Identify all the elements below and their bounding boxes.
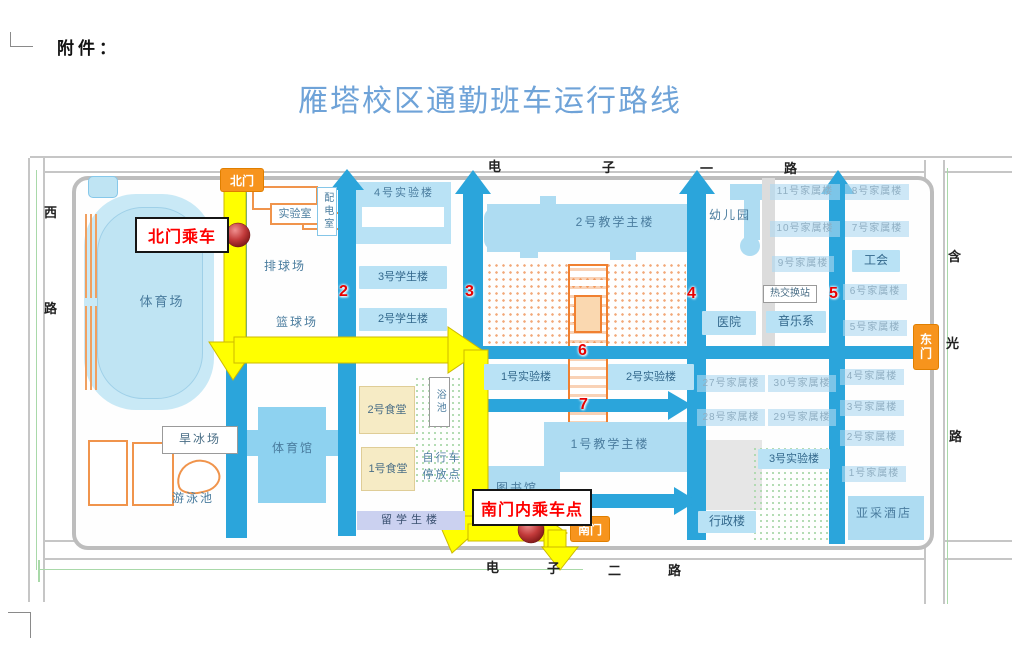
road-name-bottom: 路 bbox=[668, 560, 681, 579]
stadium-stand bbox=[85, 306, 99, 390]
north-gate: 北门 bbox=[221, 169, 263, 191]
map-label: 27号家属楼 bbox=[697, 375, 765, 392]
page-title: 雁塔校区通勤班车运行路线 bbox=[250, 76, 730, 120]
map-label: 浴池 bbox=[429, 377, 450, 427]
route-number-7: 7 bbox=[579, 396, 588, 414]
map-label: 2号食堂 bbox=[359, 386, 415, 434]
road-name-left: 西 bbox=[44, 202, 57, 221]
teach2-building bbox=[484, 208, 512, 250]
map-label: 29号家属楼 bbox=[768, 409, 836, 426]
north-boarding-label: 北门乘车 bbox=[135, 217, 229, 253]
map-label: 2号实验楼 bbox=[608, 364, 694, 390]
green-line bbox=[36, 170, 37, 570]
map-label: 游泳池 bbox=[164, 491, 222, 507]
map-label: 3号家属楼 bbox=[840, 400, 904, 416]
map-label: 9号家属楼 bbox=[772, 256, 834, 272]
map-label: 1号实验楼 bbox=[484, 364, 568, 390]
document-page: 附件： 雁塔校区通勤班车运行路线 电 子 一 路 电 子 二 路 西 路 含 光… bbox=[0, 0, 1017, 669]
map-label: 实验室 bbox=[270, 203, 320, 225]
map-label: 3号学生楼 bbox=[359, 266, 447, 289]
route-number-4: 4 bbox=[687, 285, 696, 303]
road-dianzi-1 bbox=[30, 156, 1012, 173]
colonnade bbox=[568, 264, 608, 444]
road-name-bottom: 二 bbox=[608, 560, 621, 579]
map-label: 行政楼 bbox=[698, 511, 756, 533]
kindergarten-building bbox=[740, 236, 760, 256]
map-label: 2号家属楼 bbox=[840, 430, 904, 446]
map-label: 30号家属楼 bbox=[768, 375, 836, 392]
road-name-left: 路 bbox=[44, 298, 57, 317]
attachment-label: 附件： bbox=[57, 34, 120, 59]
map-label: 排球场 bbox=[252, 259, 318, 275]
road-name-right: 路 bbox=[949, 426, 962, 445]
map-label: 医院 bbox=[702, 311, 756, 335]
south-boarding-label: 南门内乘车点 bbox=[472, 489, 592, 526]
map-label: 4号家属楼 bbox=[840, 369, 904, 385]
map-label: 留学生楼 bbox=[357, 511, 465, 530]
map-label: 亚采酒店 bbox=[852, 505, 916, 523]
map-label: 10号家属楼 bbox=[770, 221, 840, 237]
map-label: 体育馆 bbox=[263, 440, 323, 458]
teach2-building bbox=[520, 250, 538, 258]
map-label: 自行车停放点 bbox=[417, 449, 467, 488]
road-name-bottom: 子 bbox=[547, 558, 560, 577]
road-name-top: 路 bbox=[784, 158, 797, 177]
road-name-bottom: 电 bbox=[486, 557, 499, 576]
map-label: 2号教学主楼 bbox=[570, 214, 660, 231]
teach2-building bbox=[610, 250, 636, 260]
colonnade-core bbox=[574, 295, 602, 333]
tennis-court bbox=[88, 440, 128, 506]
route-number-6: 6 bbox=[578, 342, 587, 360]
green-line bbox=[38, 569, 583, 570]
green-line bbox=[947, 168, 948, 604]
map-label: 1号教学主楼 bbox=[566, 436, 654, 453]
margin-mark-top-left bbox=[10, 32, 33, 47]
map-label: 4号实验楼 bbox=[357, 184, 451, 202]
map-label: 体育场 bbox=[128, 293, 196, 311]
small-court bbox=[88, 176, 118, 198]
map-label: 旱冰场 bbox=[162, 426, 238, 454]
route-number-5: 5 bbox=[829, 285, 838, 303]
map-label: 28号家属楼 bbox=[697, 409, 765, 426]
map-label: 工会 bbox=[852, 250, 900, 272]
map-label: 音乐系 bbox=[766, 311, 826, 333]
map-label: 1号食堂 bbox=[361, 447, 415, 491]
map-label: 8号家属楼 bbox=[845, 184, 909, 200]
road-name-top: 一 bbox=[700, 158, 713, 177]
green-tick bbox=[38, 560, 40, 582]
teach2-building bbox=[540, 196, 556, 206]
stadium-stand bbox=[85, 214, 99, 298]
lab4-court bbox=[362, 207, 444, 227]
gym-building bbox=[246, 430, 258, 456]
map-label: 幼儿园 bbox=[704, 207, 756, 224]
map-label: 1号家属楼 bbox=[842, 466, 906, 482]
map-label: 3号实验楼 bbox=[758, 449, 830, 469]
route-number-3: 3 bbox=[465, 283, 474, 301]
route-number-2: 2 bbox=[339, 283, 348, 301]
map-label: 7号家属楼 bbox=[845, 221, 909, 237]
road-name-right: 含 bbox=[948, 246, 961, 265]
map-label: 5号家属楼 bbox=[843, 320, 907, 336]
map-label: 配电室 bbox=[317, 187, 337, 236]
road-name-top: 电 bbox=[488, 156, 501, 175]
map-label: 篮球场 bbox=[264, 315, 330, 331]
map-label: 11号家属楼 bbox=[770, 184, 840, 200]
east-gate: 东门 bbox=[914, 325, 938, 369]
margin-mark-bottom-left bbox=[8, 612, 31, 638]
map-label: 6号家属楼 bbox=[843, 284, 907, 300]
map-label: 热交换站 bbox=[763, 285, 817, 303]
map-label: 2号学生楼 bbox=[359, 308, 447, 331]
gym-building bbox=[326, 430, 338, 456]
road-name-right: 光 bbox=[946, 333, 959, 352]
road-name-top: 子 bbox=[602, 157, 615, 176]
